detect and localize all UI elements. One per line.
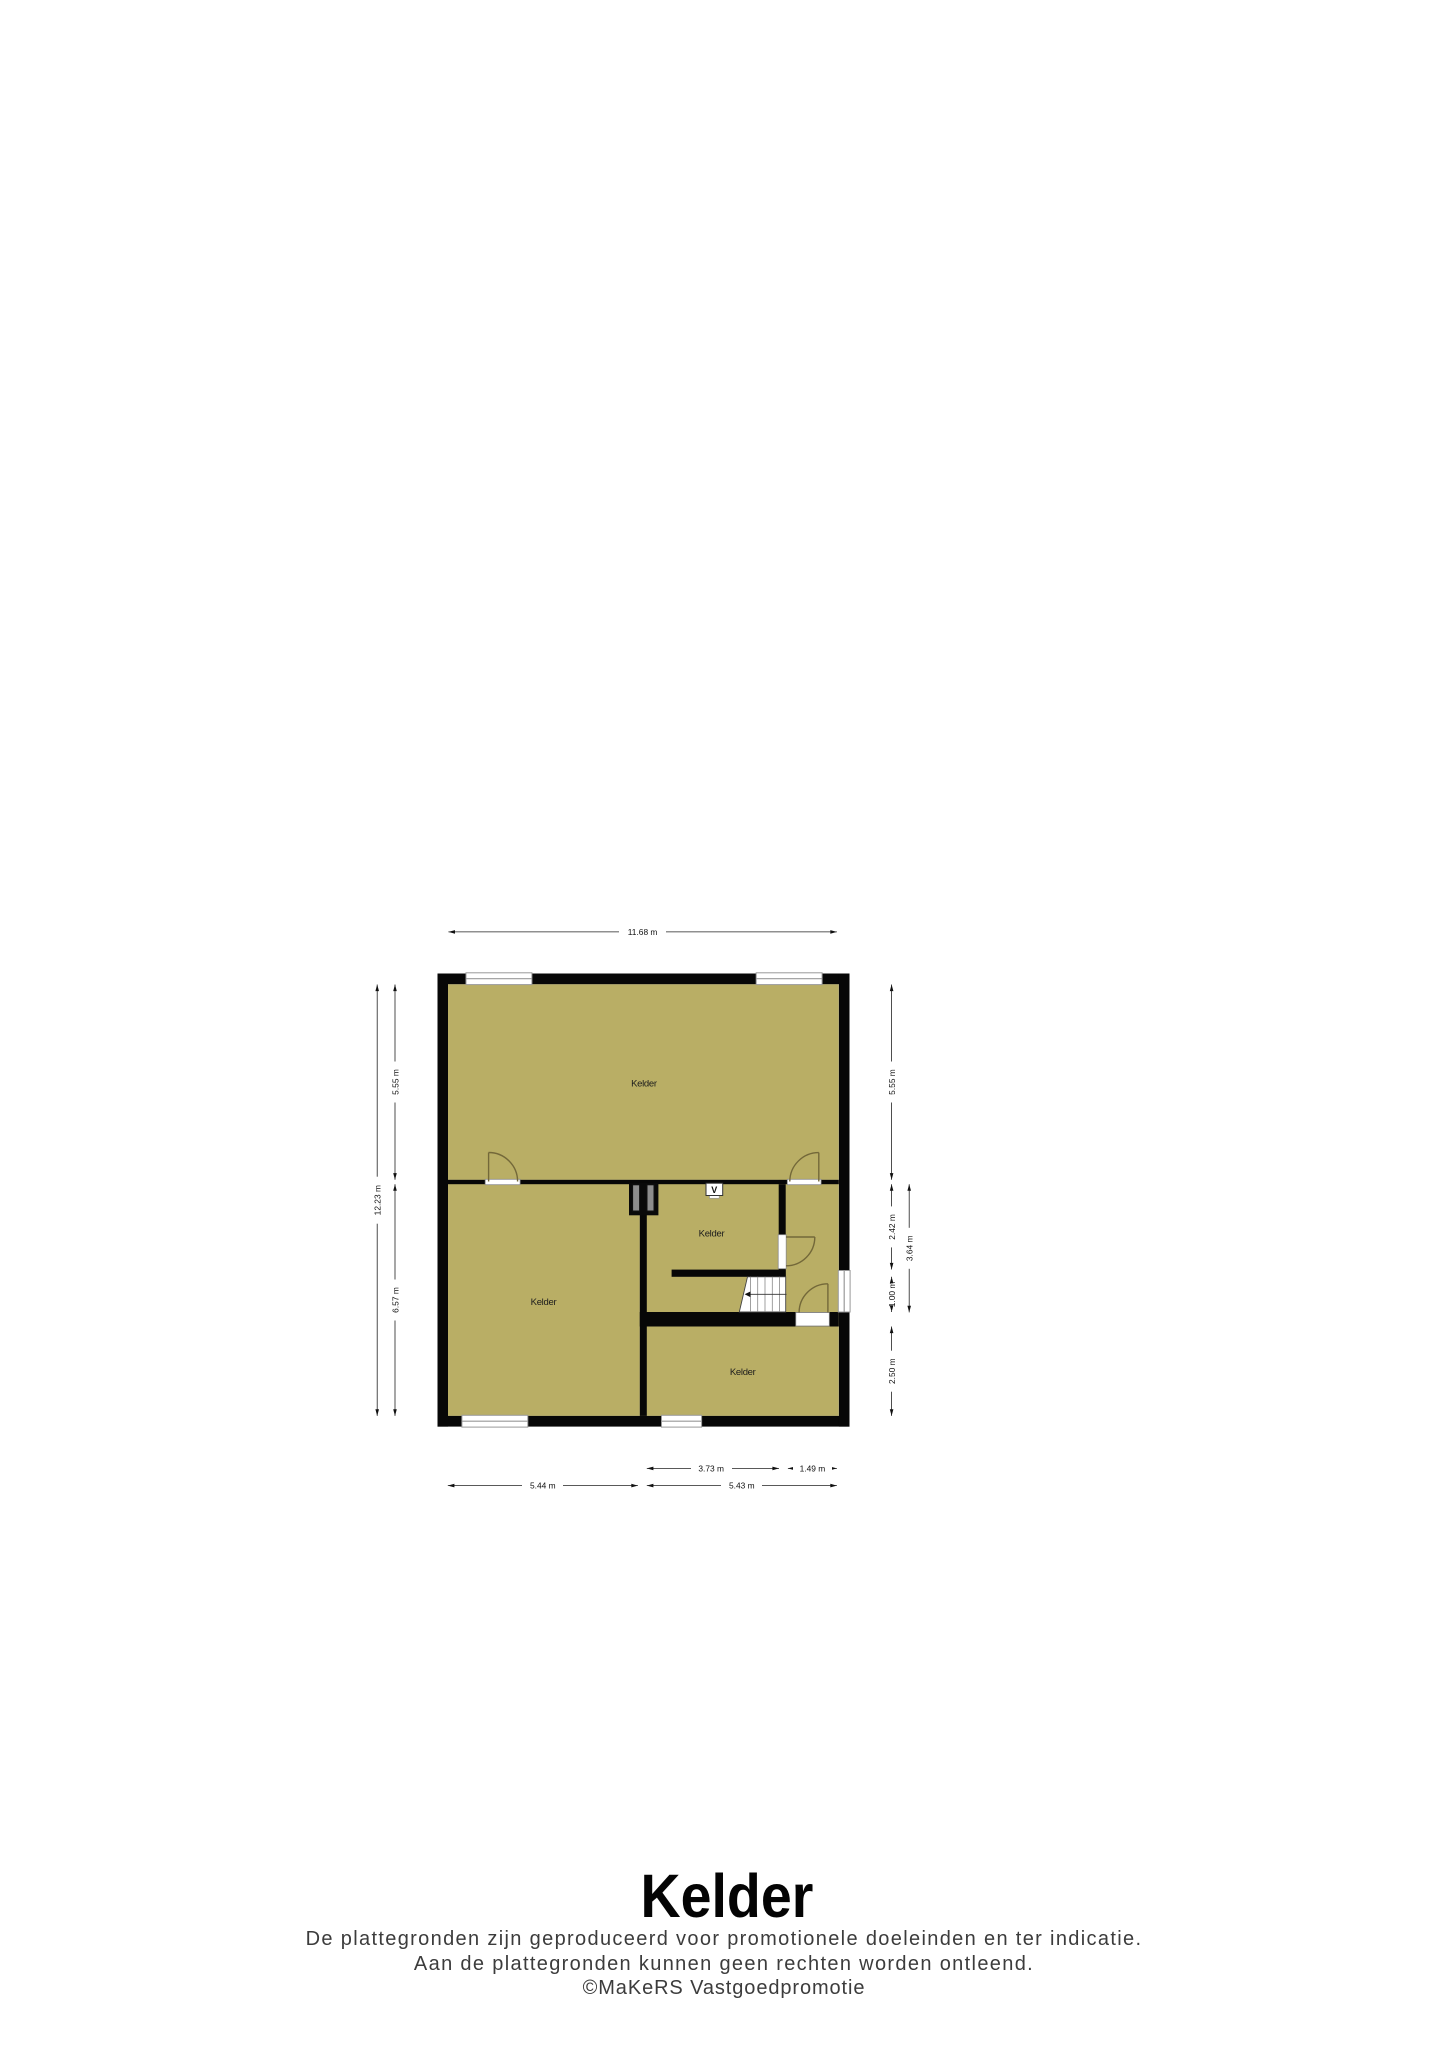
svg-text:5.43 m: 5.43 m xyxy=(729,1481,755,1491)
svg-text:6.57 m: 6.57 m xyxy=(390,1287,400,1313)
svg-text:5.44 m: 5.44 m xyxy=(530,1481,556,1491)
svg-text:Kelder: Kelder xyxy=(531,1297,557,1308)
svg-text:2.50 m: 2.50 m xyxy=(887,1358,897,1384)
svg-text:12.23 m: 12.23 m xyxy=(373,1185,383,1215)
svg-text:3.73 m: 3.73 m xyxy=(698,1464,724,1474)
svg-text:Kelder: Kelder xyxy=(730,1367,756,1378)
svg-text:5.55 m: 5.55 m xyxy=(887,1069,897,1095)
svg-text:Kelder: Kelder xyxy=(699,1229,725,1240)
svg-text:Kelder: Kelder xyxy=(631,1079,657,1090)
svg-text:3.64 m: 3.64 m xyxy=(905,1235,915,1261)
svg-text:1.49 m: 1.49 m xyxy=(800,1464,826,1474)
svg-text:5.55 m: 5.55 m xyxy=(390,1069,400,1095)
svg-text:1.00 m: 1.00 m xyxy=(887,1282,897,1308)
svg-text:2.42 m: 2.42 m xyxy=(887,1214,897,1240)
svg-text:11.68 m: 11.68 m xyxy=(628,927,658,937)
svg-text:V: V xyxy=(711,1185,717,1195)
